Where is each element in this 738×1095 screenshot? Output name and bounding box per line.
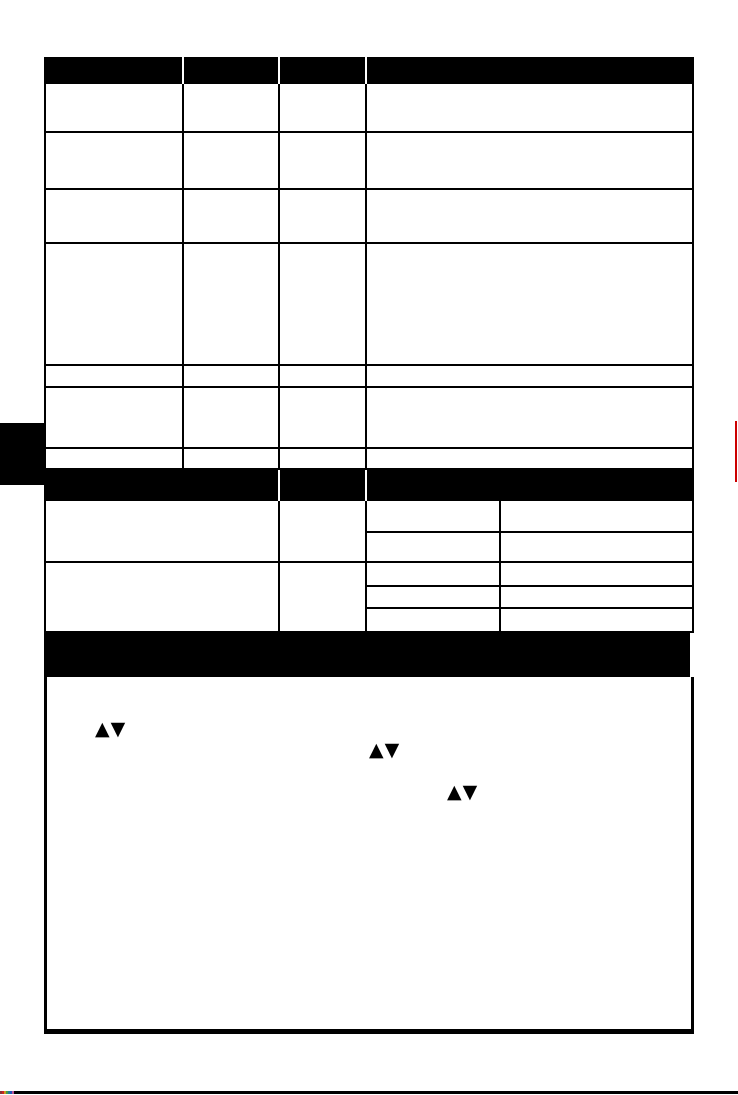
up-down-arrows-icon: ▲▼ (369, 742, 400, 759)
table-cell (280, 244, 367, 364)
table-subrow (367, 563, 692, 587)
table-cell (367, 133, 692, 188)
table2-header-cell (367, 470, 692, 501)
page-edge-tab (0, 423, 46, 485)
table1-header-cell (46, 57, 184, 84)
table-cell (46, 366, 184, 386)
table-cell (46, 244, 184, 364)
table-row (46, 388, 692, 449)
section-title-bar (44, 633, 690, 677)
table-row-group (46, 501, 692, 563)
table-cell (280, 84, 367, 131)
table-subgrid (367, 563, 692, 631)
table-cell (184, 190, 280, 242)
table-row (46, 133, 692, 190)
sub-table-header-row (46, 470, 692, 501)
table-cell (367, 190, 692, 242)
table-cell (184, 84, 280, 131)
table2-header-cell (280, 470, 367, 501)
table-cell (280, 133, 367, 188)
table-cell (46, 563, 280, 631)
table-cell (184, 244, 280, 364)
table-cell (501, 501, 692, 531)
table-row (46, 366, 692, 388)
table-cell (46, 388, 184, 447)
scan-artifact-line (14, 1091, 738, 1094)
table-cell (280, 190, 367, 242)
scan-artifact-bar (0, 1091, 738, 1094)
table-subrow (367, 533, 692, 561)
table-subrow (367, 501, 692, 533)
instructions-box: ▲▼▲▼▲▼ (44, 677, 694, 1034)
table-cell (367, 609, 501, 631)
table-cell (46, 84, 184, 131)
table-cell (46, 449, 184, 468)
table-cell (501, 533, 692, 561)
table-cell (280, 563, 367, 631)
table-row-group (46, 563, 692, 631)
table-cell (280, 449, 367, 468)
table-row (46, 190, 692, 244)
table-cell (280, 366, 367, 386)
table-cell (184, 366, 280, 386)
table-row (46, 84, 692, 133)
spec-table (44, 57, 694, 470)
table-cell (184, 133, 280, 188)
table1-header-cell (184, 57, 280, 84)
table1-header-cell (280, 57, 367, 84)
spec-table-header-row (46, 57, 692, 84)
up-down-arrows-icon: ▲▼ (95, 721, 126, 738)
table-cell (501, 609, 692, 631)
table-cell (367, 366, 692, 386)
table-cell (367, 244, 692, 364)
table2-header-cell (46, 470, 280, 501)
table-cell (367, 563, 501, 585)
table-row (46, 244, 692, 366)
table-subrow (367, 609, 692, 631)
table-row (46, 449, 692, 468)
table-cell (501, 563, 692, 585)
table-cell (280, 388, 367, 447)
table-cell (367, 449, 692, 468)
table-cell (367, 388, 692, 447)
table-cell (184, 449, 280, 468)
table-subrow (367, 587, 692, 609)
table-cell (367, 84, 692, 131)
table2-body (46, 501, 692, 631)
table-subgrid (367, 501, 692, 561)
up-down-arrows-icon: ▲▼ (447, 784, 478, 801)
table-cell (184, 388, 280, 447)
table-cell (46, 133, 184, 188)
table-cell (367, 587, 501, 607)
table-cell (280, 501, 367, 561)
sub-table (44, 470, 694, 633)
table-cell (367, 533, 501, 561)
table1-header-cell (367, 57, 692, 84)
table1-body (46, 84, 692, 468)
table-cell (46, 190, 184, 242)
table-cell (501, 587, 692, 607)
table-cell (46, 501, 280, 561)
table-cell (367, 501, 501, 531)
page-edge-marker (735, 421, 737, 482)
